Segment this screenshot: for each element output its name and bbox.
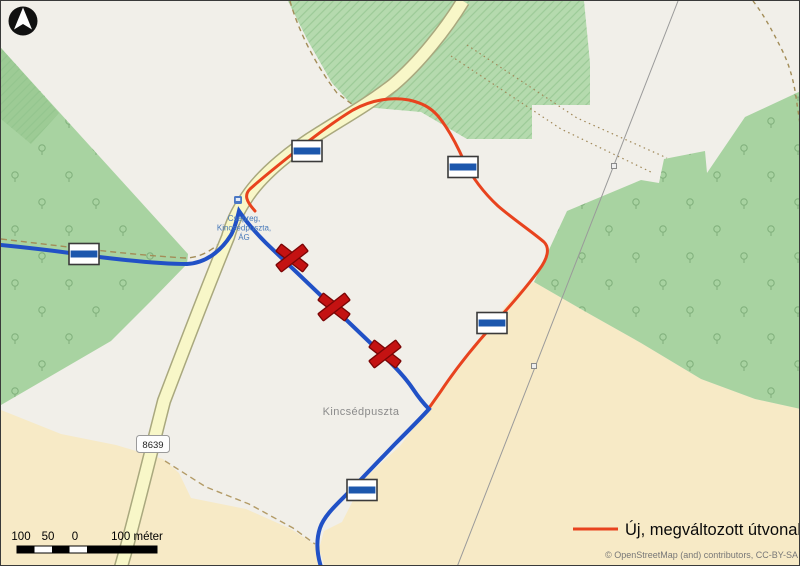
trail-blaze-icon: [69, 244, 99, 265]
trail-blaze-icon: [477, 313, 507, 334]
scale-label: 100: [11, 531, 30, 543]
svg-text:8639: 8639: [142, 440, 163, 451]
road-shield: 8639: [137, 436, 170, 453]
pylon-icon: [532, 364, 537, 369]
scale-label: 50: [42, 531, 55, 543]
scale-label: 100 méter: [111, 531, 163, 543]
trail-blaze-icon: [347, 480, 377, 501]
svg-text:Kincsédpuszta,: Kincsédpuszta,: [217, 224, 271, 233]
svg-text:Csepreg,: Csepreg,: [228, 214, 260, 223]
attribution: © OpenStreetMap (and) contributors, CC-B…: [605, 550, 798, 560]
svg-text:ÁG: ÁG: [238, 233, 250, 242]
map-canvas: 8639 Csepreg, Kincsédpuszta,: [0, 0, 800, 566]
trail-blaze-icon: [292, 141, 322, 162]
map-svg: 8639 Csepreg, Kincsédpuszta,: [1, 1, 800, 566]
bus-stop-icon: [234, 196, 242, 204]
pylon-icon: [612, 164, 617, 169]
trail-blaze-icon: [448, 157, 478, 178]
scale-label: 0: [72, 531, 78, 543]
legend-label: Új, megváltozott útvonal: [625, 520, 800, 539]
north-arrow-icon: [9, 7, 38, 36]
place-label: Kincsédpuszta: [323, 406, 400, 418]
